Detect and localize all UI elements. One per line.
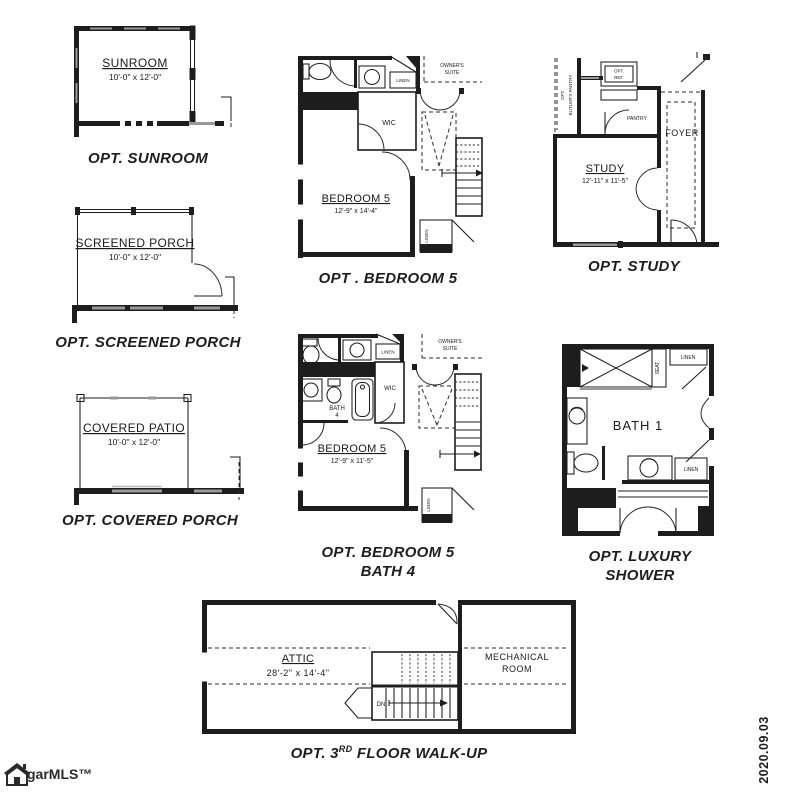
luxury-shower-caption-line1: OPT. LUXURY <box>558 548 722 567</box>
covered-porch-floor-plan-drawing: COVERED PATIO 10'-0" x 12'-0" <box>52 388 248 506</box>
plan-bedroom5-bath4: LINEN BATH 4 WIC OWNER'S SUITE <box>292 330 484 582</box>
walkup-caption: OPT. 3RD FLOOR WALK-UP <box>198 744 580 764</box>
study-caption: OPT. STUDY <box>545 258 723 277</box>
date-stamp: 2020.09.03 <box>757 707 773 793</box>
bed5bath4-wic-label: WIC <box>384 386 396 392</box>
bedroom5-floor-plan-drawing: LINEN WIC OWNER'S SUITE <box>292 52 484 264</box>
walkup-down-label: DN <box>377 702 386 708</box>
bedroom5-owners-suite-label-2: SUITE <box>445 70 460 76</box>
plan-sunroom: SUNROOM 10'-0" x 12'-0" OPT. SUNROOM <box>52 18 244 169</box>
walkup-caption-suffix: FLOOR WALK-UP <box>352 745 487 762</box>
study-foyer-label: FOYER <box>665 128 699 138</box>
bedroom5-linen-bottom-label: LINEN <box>424 229 429 242</box>
bedroom5-room-dims: 12'-9" x 14'-4" <box>334 208 378 215</box>
bed5bath4-owners-suite-label-1: OWNER'S <box>438 339 462 345</box>
plan-covered-porch: COVERED PATIO 10'-0" x 12'-0" OPT. COVER… <box>52 388 248 531</box>
bedroom5-room-label: BEDROOM 5 <box>322 193 391 205</box>
covered-porch-caption: OPT. COVERED PORCH <box>52 512 248 531</box>
sunroom-floor-plan-drawing: SUNROOM 10'-0" x 12'-0" <box>52 18 244 144</box>
walkup-mechanical-label-2: ROOM <box>502 664 532 674</box>
bed5bath4-room-dims: 12'-9" x 11'-5" <box>331 458 374 465</box>
mls-logo-text: garMLS™ <box>27 766 92 782</box>
study-pantry-label: PANTRY <box>627 116 647 122</box>
screened-porch-room-dims: 10'-0" x 12'-0" <box>109 252 161 262</box>
screened-porch-floor-plan-drawing: SCREENED PORCH 10'-0" x 12'-0" <box>52 200 244 328</box>
screened-porch-room-label: SCREENED PORCH <box>76 236 195 250</box>
plan-luxury-shower: SEAT LINEN BATH 1 <box>558 340 722 586</box>
luxury-shower-linen-top-label: LINEN <box>681 355 696 361</box>
bed5bath4-caption-line1: OPT. BEDROOM 5 <box>292 544 484 563</box>
walkup-caption-ordinal: RD <box>339 744 353 754</box>
bedroom5-wic-label: WIC <box>382 120 396 127</box>
luxury-shower-linen-bottom-label: LINEN <box>684 467 699 473</box>
bedroom5-bath4-floor-plan-drawing: LINEN BATH 4 WIC OWNER'S SUITE <box>292 330 484 538</box>
study-butlers-pantry-label-1: OPT. <box>560 90 565 100</box>
bed5bath4-linen-top-label: LINEN <box>381 350 394 355</box>
floor-plan-sheet: SUNROOM 10'-0" x 12'-0" OPT. SUNROOM SCR… <box>0 0 787 800</box>
sunroom-caption: OPT. SUNROOM <box>52 150 244 169</box>
bed5bath4-caption-line2: BATH 4 <box>292 563 484 582</box>
plan-bedroom5: LINEN WIC OWNER'S SUITE <box>292 52 484 289</box>
plan-walkup: DN ATTIC 28'-2" x 14'-4" MECHANICAL ROOM… <box>198 596 580 764</box>
bedroom5-linen-top-label: LINEN <box>396 78 409 83</box>
study-room-label: STUDY <box>586 163 625 175</box>
luxury-shower-room-label: BATH 1 <box>613 418 664 433</box>
walkup-floor-plan-drawing: DN ATTIC 28'-2" x 14'-4" MECHANICAL ROOM <box>198 596 580 738</box>
bath4-label-1: BATH <box>329 406 345 412</box>
luxury-shower-floor-plan-drawing: SEAT LINEN BATH 1 <box>558 340 722 542</box>
luxury-shower-seat-label: SEAT <box>655 362 661 375</box>
mls-logo: garMLS™ <box>2 760 92 788</box>
bed5bath4-room-label: BEDROOM 5 <box>318 443 387 455</box>
walkup-caption-prefix: OPT. 3 <box>291 745 339 762</box>
walkup-attic-dims: 28'-2" x 14'-4" <box>267 668 330 678</box>
walkup-attic-label: ATTIC <box>282 653 314 665</box>
plan-screened-porch: SCREENED PORCH 10'-0" x 12'-0" OPT. SCRE… <box>52 200 244 353</box>
screened-porch-caption: OPT. SCREENED PORCH <box>52 334 244 353</box>
study-room-dims: 12'-11" x 11'-5" <box>582 178 628 185</box>
plan-study: OPT. BUTLER'S PANTRY OPT. REF. PANTRY <box>545 50 723 277</box>
bedroom5-caption: OPT . BEDROOM 5 <box>292 270 484 289</box>
study-butlers-pantry-label-2: BUTLER'S PANTRY <box>568 75 573 116</box>
bath4-label-2: 4 <box>335 413 339 419</box>
luxury-shower-caption-line2: SHOWER <box>558 567 722 586</box>
study-ref-label-2: REF. <box>614 75 624 80</box>
sunroom-room-dims: 10'-0" x 12'-0" <box>109 72 161 82</box>
sunroom-room-label: SUNROOM <box>102 56 167 70</box>
bed5bath4-owners-suite-label-2: SUITE <box>443 346 458 352</box>
study-floor-plan-drawing: OPT. BUTLER'S PANTRY OPT. REF. PANTRY <box>545 50 723 252</box>
covered-porch-room-label: COVERED PATIO <box>83 421 185 435</box>
covered-porch-room-dims: 10'-0" x 12'-0" <box>108 437 160 447</box>
walkup-mechanical-label-1: MECHANICAL <box>485 652 549 662</box>
bedroom5-owners-suite-label-1: OWNER'S <box>440 63 464 69</box>
bed5bath4-linen-bottom-label: LINEN <box>426 498 431 511</box>
study-ref-label-1: OPT. <box>614 69 624 74</box>
